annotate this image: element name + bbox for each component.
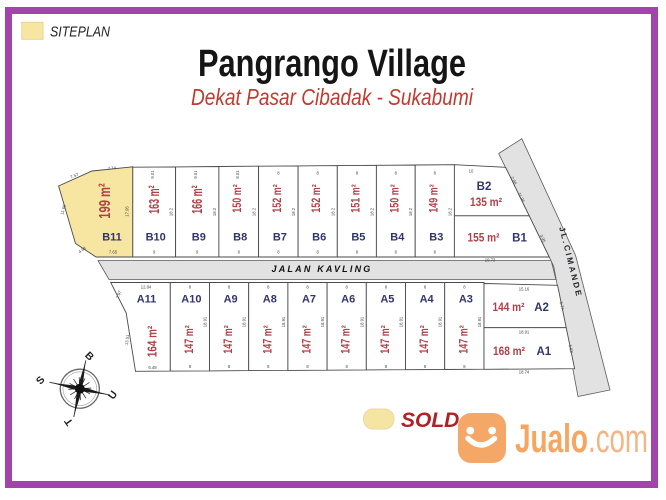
svg-text:JALAN KAVLING: JALAN KAVLING — [272, 264, 373, 274]
svg-text:17.95: 17.95 — [124, 206, 129, 217]
svg-text:A4: A4 — [420, 294, 435, 306]
svg-text:B5: B5 — [351, 232, 365, 244]
svg-text:Dekat Pasar Cibadak - Sukabumi: Dekat Pasar Cibadak - Sukabumi — [191, 84, 474, 110]
svg-text:7.74: 7.74 — [108, 165, 117, 171]
svg-text:10: 10 — [469, 169, 474, 174]
svg-text:A7: A7 — [302, 294, 316, 306]
svg-text:152 m²: 152 m² — [311, 184, 323, 213]
svg-text:8.01: 8.01 — [235, 170, 240, 179]
svg-text:150 m²: 150 m² — [232, 184, 244, 213]
svg-text:9.01: 9.01 — [150, 170, 155, 179]
svg-text:147 m²: 147 m² — [223, 325, 235, 354]
svg-text:19.73: 19.73 — [485, 258, 496, 263]
svg-text:18.91: 18.91 — [320, 316, 325, 327]
svg-text:18.2: 18.2 — [408, 207, 413, 216]
svg-text:SOLD: SOLD — [401, 409, 459, 432]
svg-text:147 m²: 147 m² — [419, 325, 431, 354]
svg-text:12.84: 12.84 — [141, 285, 152, 290]
svg-text:.com: .com — [588, 417, 648, 461]
svg-text:147 m²: 147 m² — [458, 325, 470, 354]
svg-text:18.2: 18.2 — [447, 207, 452, 216]
svg-text:150 m²: 150 m² — [389, 184, 401, 213]
svg-text:18.91: 18.91 — [477, 316, 482, 327]
svg-text:164 m²: 164 m² — [146, 326, 160, 357]
svg-text:18.91: 18.91 — [281, 316, 286, 327]
svg-text:18.91: 18.91 — [519, 330, 530, 335]
svg-text:A5: A5 — [380, 294, 394, 306]
svg-text:9.01: 9.01 — [193, 170, 198, 179]
svg-text:B2: B2 — [477, 181, 492, 193]
svg-text:18.91: 18.91 — [203, 316, 208, 327]
svg-text:147 m²: 147 m² — [262, 325, 274, 354]
svg-text:6.48: 6.48 — [148, 365, 157, 370]
svg-text:A10: A10 — [181, 294, 201, 306]
svg-text:147 m²: 147 m² — [184, 325, 196, 354]
svg-text:18.2: 18.2 — [212, 207, 217, 216]
svg-text:18.2: 18.2 — [330, 207, 335, 216]
svg-text:163 m²: 163 m² — [146, 185, 163, 214]
svg-text:18.91: 18.91 — [399, 316, 404, 327]
svg-text:199 m²: 199 m² — [95, 183, 114, 219]
svg-text:147 m²: 147 m² — [380, 325, 392, 354]
svg-text:A2: A2 — [534, 302, 549, 314]
svg-text:18.91: 18.91 — [242, 316, 247, 327]
svg-text:B4: B4 — [390, 232, 405, 244]
svg-text:7.65: 7.65 — [109, 250, 118, 255]
svg-text:18.2: 18.2 — [369, 207, 374, 216]
svg-text:B1: B1 — [512, 233, 527, 245]
svg-text:18.2: 18.2 — [252, 207, 257, 216]
svg-text:135 m²: 135 m² — [470, 195, 502, 209]
svg-text:Pangrango Village: Pangrango Village — [198, 43, 466, 85]
svg-text:166 m²: 166 m² — [189, 185, 206, 214]
svg-text:B3: B3 — [429, 232, 443, 244]
svg-text:B8: B8 — [233, 232, 247, 244]
svg-text:168 m²: 168 m² — [493, 344, 525, 358]
svg-text:15.16: 15.16 — [519, 287, 530, 292]
svg-text:147 m²: 147 m² — [302, 325, 314, 354]
svg-text:152 m²: 152 m² — [272, 184, 284, 213]
svg-text:18.74: 18.74 — [519, 370, 530, 375]
svg-text:155 m²: 155 m² — [468, 231, 500, 245]
svg-text:144 m²: 144 m² — [493, 300, 525, 314]
svg-text:Jualo: Jualo — [515, 417, 588, 461]
svg-text:149 m²: 149 m² — [428, 184, 440, 213]
svg-text:18.2: 18.2 — [169, 207, 174, 216]
svg-text:A1: A1 — [536, 346, 551, 358]
svg-text:A6: A6 — [341, 294, 355, 306]
svg-text:B11: B11 — [102, 232, 122, 244]
svg-text:147 m²: 147 m² — [341, 325, 353, 354]
svg-text:SITEPLAN: SITEPLAN — [50, 24, 110, 41]
svg-text:B10: B10 — [146, 232, 166, 244]
svg-text:18.2: 18.2 — [291, 207, 296, 216]
svg-text:B9: B9 — [192, 232, 206, 244]
svg-text:151 m²: 151 m² — [350, 184, 362, 213]
svg-text:A11: A11 — [137, 294, 157, 306]
svg-text:18.91: 18.91 — [359, 316, 364, 327]
svg-text:B6: B6 — [312, 232, 326, 244]
svg-text:B7: B7 — [273, 232, 287, 244]
svg-text:18.91: 18.91 — [438, 316, 443, 327]
svg-text:A3: A3 — [459, 294, 473, 306]
svg-text:A9: A9 — [224, 294, 238, 306]
svg-text:A8: A8 — [263, 294, 277, 306]
